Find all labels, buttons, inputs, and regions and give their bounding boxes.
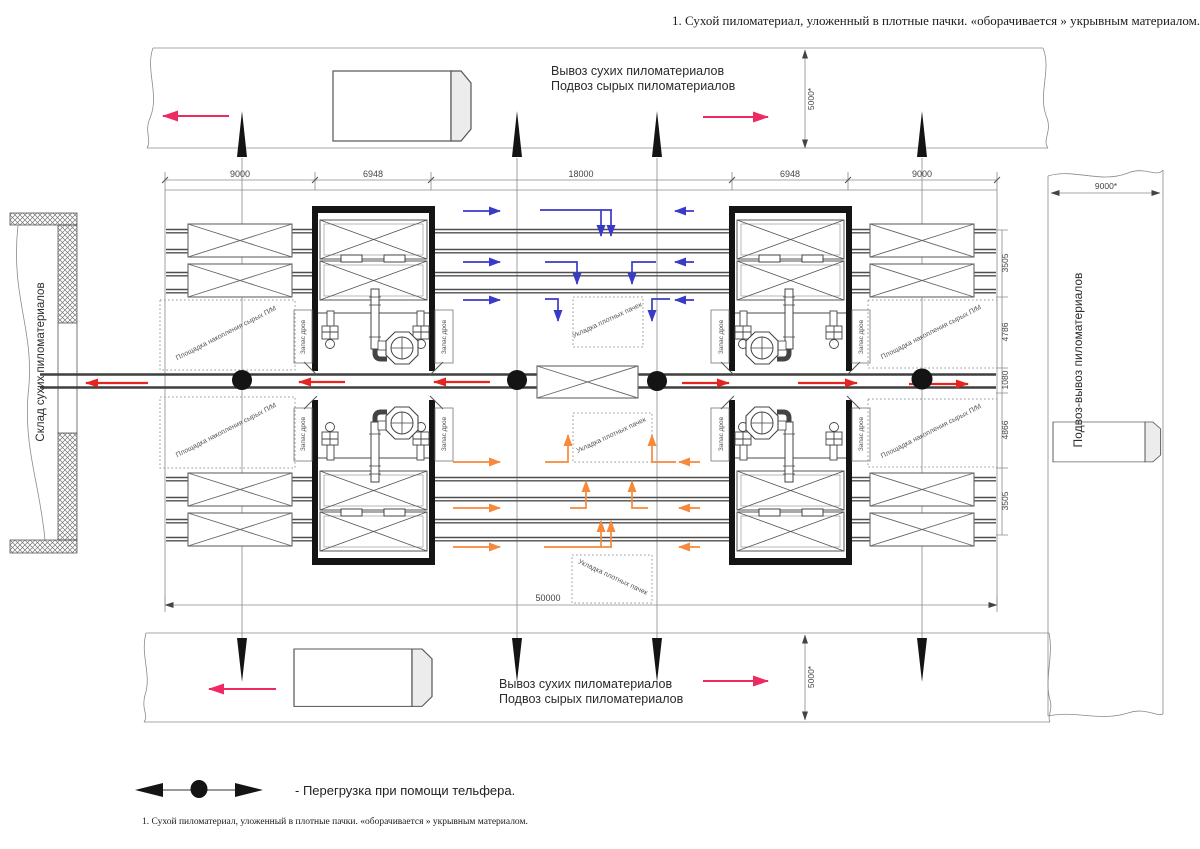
dim-top-1: 9000 [230,169,250,179]
warehouse-label: Склад сухих пиломатериалов [35,282,47,441]
right-road-label: Подвоз-вывоз пиломатериалов [1071,273,1085,448]
stacking-label-mid: Укладка плотных пачек [576,416,648,455]
top-road-label-1: Вывоз сухих пиломатериалов [551,64,725,78]
right-road-width-dim: 9000* [1095,181,1118,191]
truck-bottom-road [294,649,432,706]
top-road-label-2: Подвоз сырых пиломатериалов [551,79,736,93]
header-note: 1. Сухой пиломатериал, уложенный в плотн… [672,13,1200,28]
firewood-label-8: Запас дров [858,416,865,451]
firewood-label-2: Запас дров [441,319,448,354]
dim-right-5: 3505 [1000,491,1010,510]
top-road-width-dim: 5000* [806,87,816,110]
firewood-label-4: Запас дров [858,319,865,354]
bottom-road-label-1: Вывоз сухих пиломатериалов [499,677,673,691]
dim-right-3: 1080 [1000,370,1010,389]
dry-lumber-flow [86,382,968,384]
dim-top-5: 9000 [912,169,932,179]
accumulation-label-tr: Площадка накопления сырых П/М [880,304,983,361]
dim-total: 50000 [535,593,560,603]
total-dimension [165,596,997,612]
firewood-label-1: Запас дров [300,319,307,354]
dim-top-2: 6948 [363,169,383,179]
accumulation-label-bl: Площадка накопления сырых П/М [175,402,278,459]
dim-right-1: 3505 [1000,253,1010,272]
wet-lumber-flow-upper [463,210,694,321]
footer-note: 1. Сухой пиломатериал, уложенный в плотн… [142,816,528,827]
accumulation-label-br: Площадка накопления сырых П/М [880,403,983,460]
firewood-label-5: Запас дров [300,416,307,451]
right-road [1048,170,1163,716]
central-transfer-stack [537,366,638,398]
dim-top-4: 6948 [780,169,800,179]
firewood-label-6: Запас дров [441,416,448,451]
kiln-block-top-left [294,206,453,375]
truck-right-road [1053,422,1161,462]
legend-telpher [135,780,263,798]
firewood-label-3: Запас дров [718,319,725,354]
dim-top-3: 18000 [568,169,593,179]
truck-top-road [333,71,471,141]
text-layer: 1. Сухой пиломатериал, уложенный в плотн… [35,13,1200,827]
accumulation-label-tl: Площадка накопления сырых П/М [175,305,278,362]
kiln-block-bottom-left [294,396,453,565]
dim-right-4: 4866 [1000,420,1010,439]
kiln-block-bottom-right [711,396,870,565]
legend-telpher-label: - Перегрузка при помощи тельфера. [295,783,515,798]
kiln-block-top-right [711,206,870,375]
site-plan-drawing: 1. Сухой пиломатериал, уложенный в плотн… [0,0,1200,849]
stacking-label-bottom: Укладка плотных пачек [577,558,649,597]
dim-right-2: 4786 [1000,322,1010,341]
bottom-road-label-2: Подвоз сырых пиломатериалов [499,692,684,706]
firewood-label-7: Запас дров [718,416,725,451]
bottom-road-width-dim: 5000* [806,665,816,688]
stacking-label-top: Укладка плотных пачек [572,301,644,340]
